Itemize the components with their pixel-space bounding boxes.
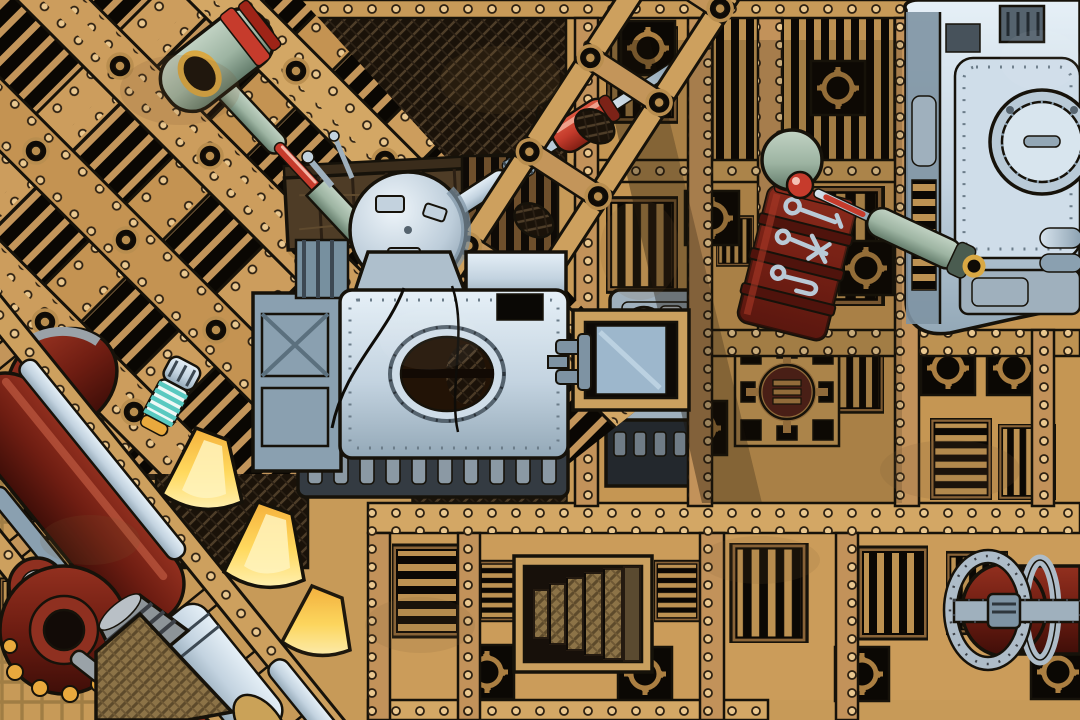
game-viewport bbox=[0, 0, 1080, 720]
red-ball-joint bbox=[787, 172, 813, 198]
bellows-duct bbox=[514, 556, 652, 672]
scene-canvas bbox=[0, 0, 1080, 720]
boiler-cap[interactable] bbox=[944, 550, 1080, 670]
mech-hatch[interactable] bbox=[990, 90, 1080, 194]
hull-slot bbox=[497, 294, 543, 320]
